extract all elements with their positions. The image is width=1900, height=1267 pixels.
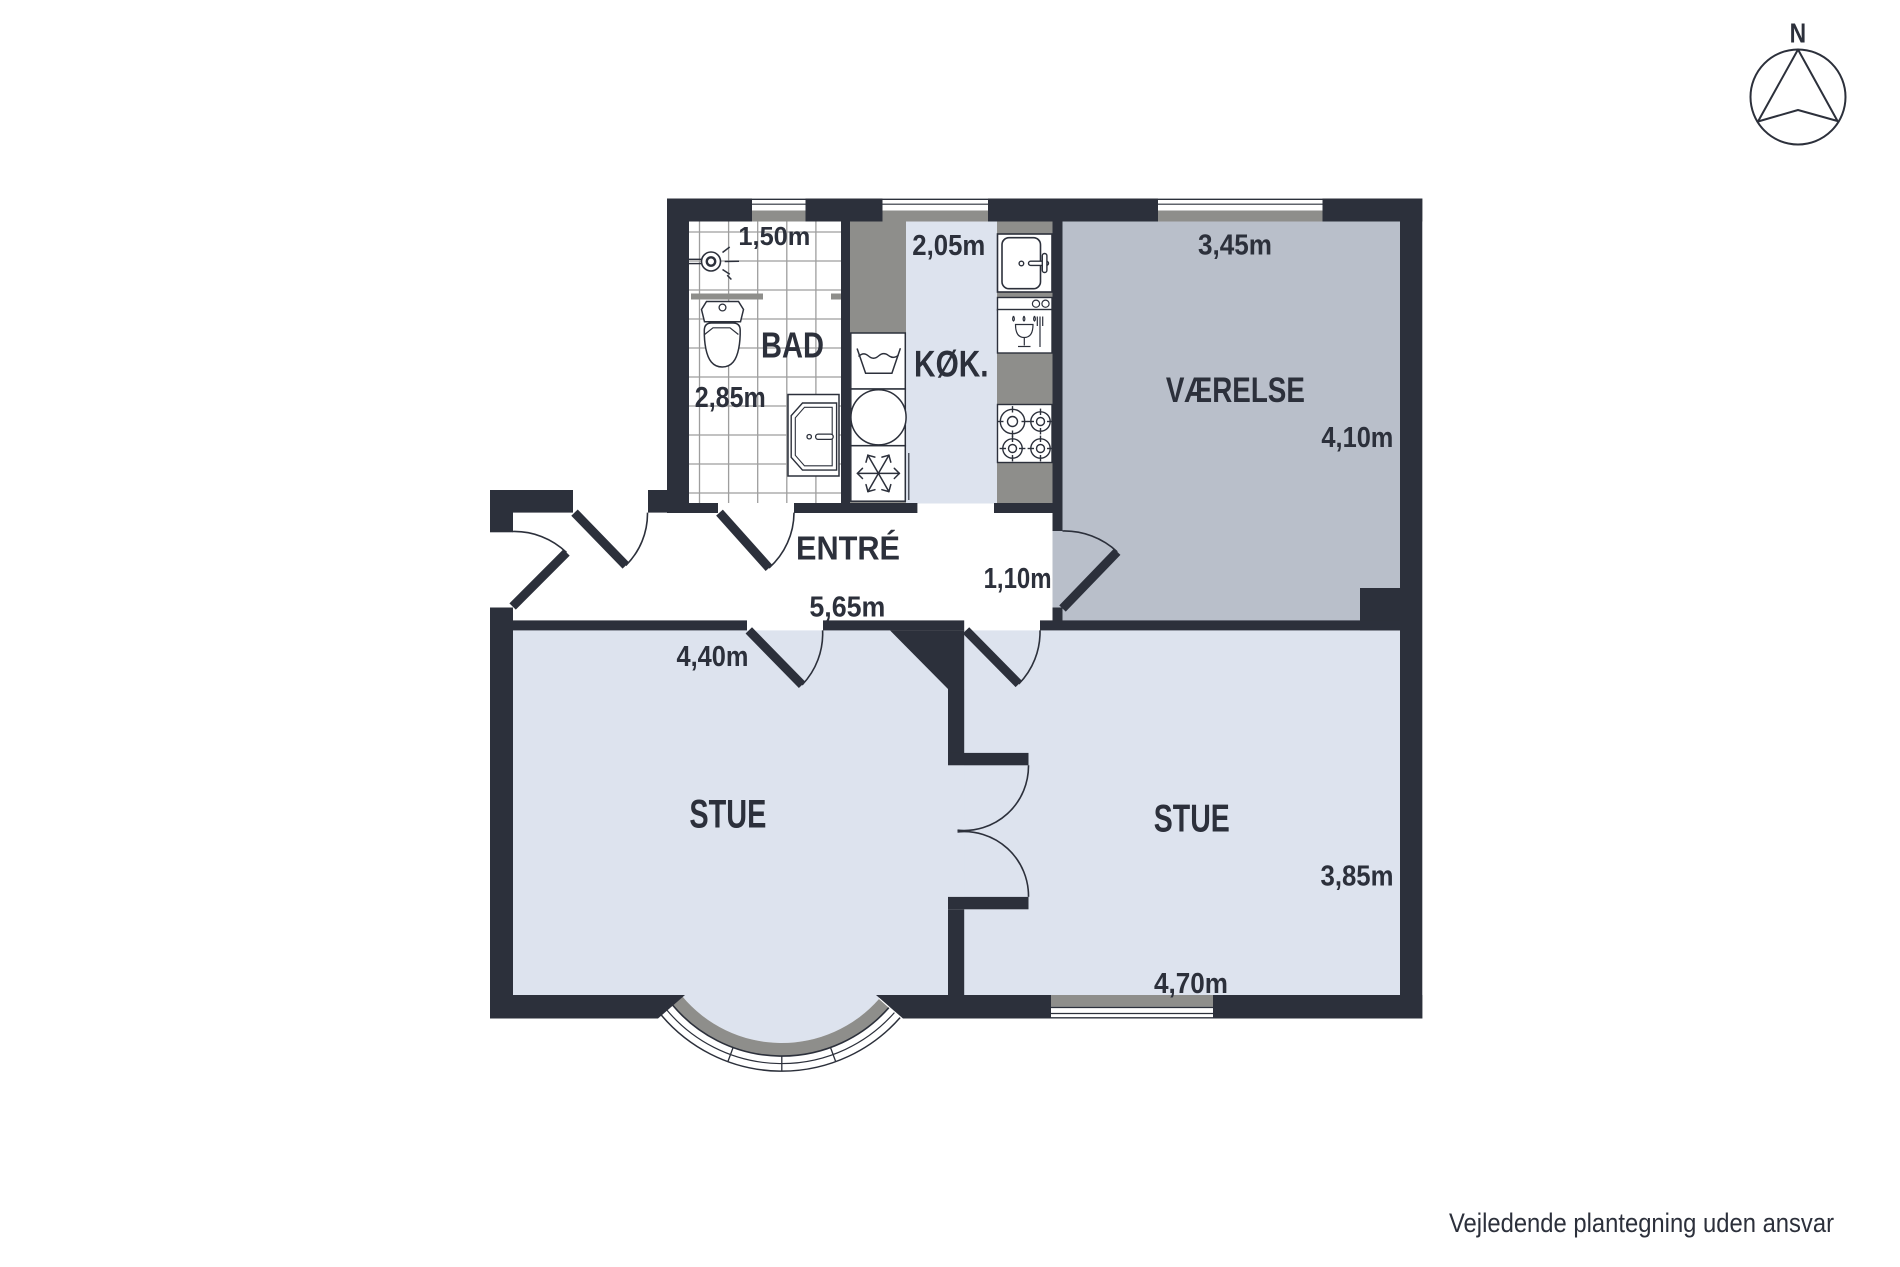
svg-text:STUE: STUE: [1154, 797, 1230, 840]
svg-text:3,45m: 3,45m: [1198, 230, 1272, 262]
svg-text:STUE: STUE: [689, 793, 766, 837]
svg-text:Vejledende plantegning uden an: Vejledende plantegning uden ansvar: [1449, 1208, 1834, 1238]
svg-text:KØK.: KØK.: [914, 344, 989, 385]
svg-text:4,10m: 4,10m: [1321, 422, 1393, 454]
svg-text:5,65m: 5,65m: [809, 591, 885, 623]
svg-text:3,85m: 3,85m: [1321, 860, 1394, 892]
svg-text:BAD: BAD: [761, 325, 824, 366]
svg-text:N: N: [1790, 18, 1807, 49]
svg-text:1,10m: 1,10m: [984, 563, 1052, 595]
svg-text:1,50m: 1,50m: [738, 221, 810, 251]
svg-text:2,85m: 2,85m: [695, 382, 766, 414]
svg-text:4,70m: 4,70m: [1154, 968, 1228, 1000]
svg-text:4,40m: 4,40m: [677, 641, 749, 673]
svg-text:ENTRÉ: ENTRÉ: [796, 530, 900, 567]
svg-text:2,05m: 2,05m: [912, 230, 985, 262]
svg-text:VÆRELSE: VÆRELSE: [1166, 371, 1305, 410]
